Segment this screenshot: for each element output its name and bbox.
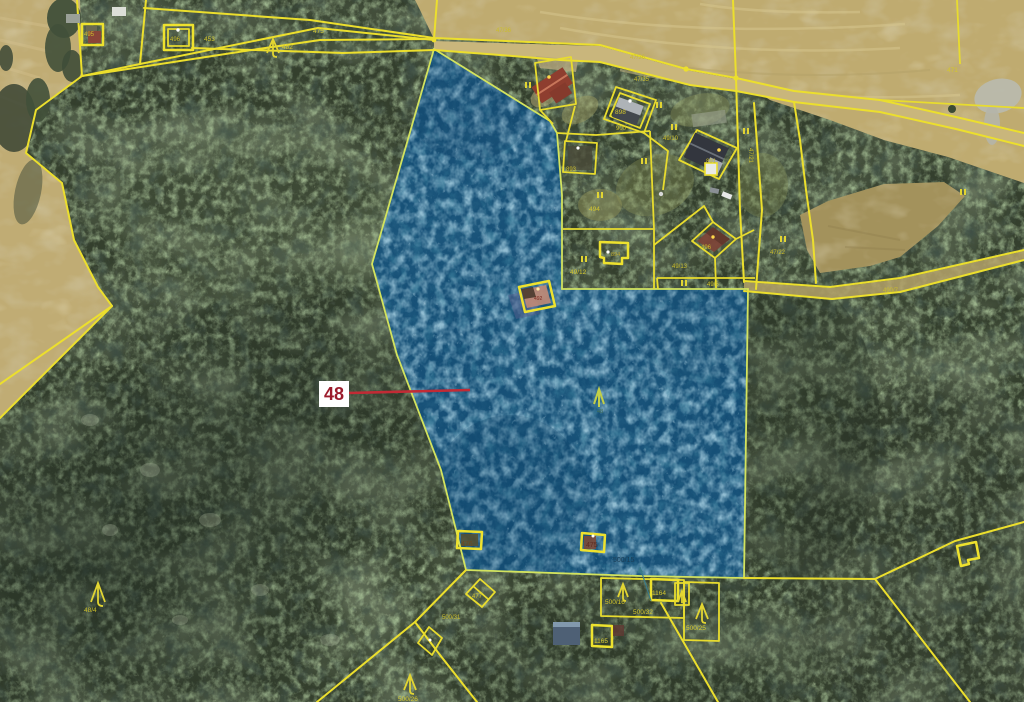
svg-text:500/32: 500/32 [633,609,653,616]
svg-text:490/7: 490/7 [883,288,899,294]
svg-text:500/16: 500/16 [605,599,625,606]
svg-text:453: 453 [204,36,215,43]
svg-text:898: 898 [615,109,626,116]
svg-text:500/25: 500/25 [686,625,706,632]
svg-text:48: 48 [324,384,344,404]
svg-text:49/13: 49/13 [672,264,688,270]
svg-text:47/35: 47/35 [634,77,650,83]
svg-text:475: 475 [313,28,324,35]
svg-text:900: 900 [616,126,627,132]
svg-text:495: 495 [84,32,95,38]
svg-text:475: 475 [586,542,598,549]
svg-text:496: 496 [701,245,712,251]
svg-text:48: 48 [597,409,603,415]
svg-text:49/6: 49/6 [707,282,719,288]
svg-text:48/4: 48/4 [84,607,97,614]
svg-text:47/21: 47/21 [747,148,753,164]
svg-text:492: 492 [534,296,543,302]
svg-text:500/31: 500/31 [442,615,461,621]
svg-text:47/36: 47/36 [496,28,512,34]
svg-text:49/10: 49/10 [663,136,679,142]
svg-text:496: 496 [170,37,181,43]
svg-text:891: 891 [706,159,717,165]
svg-text:1164: 1164 [652,590,666,597]
svg-text:47/36: 47/36 [630,55,646,61]
svg-text:476: 476 [461,541,473,548]
svg-text:471: 471 [947,67,958,74]
svg-text:494: 494 [589,206,600,213]
svg-text:500/26: 500/26 [398,696,418,702]
svg-text:894: 894 [611,252,620,258]
svg-text:49/12: 49/12 [570,269,587,276]
svg-text:500/15: 500/15 [613,557,635,564]
svg-text:893: 893 [566,167,577,173]
svg-text:47/22: 47/22 [770,250,786,256]
svg-text:482: 482 [282,44,293,51]
svg-text:477: 477 [472,594,483,600]
svg-text:1165: 1165 [594,638,608,645]
